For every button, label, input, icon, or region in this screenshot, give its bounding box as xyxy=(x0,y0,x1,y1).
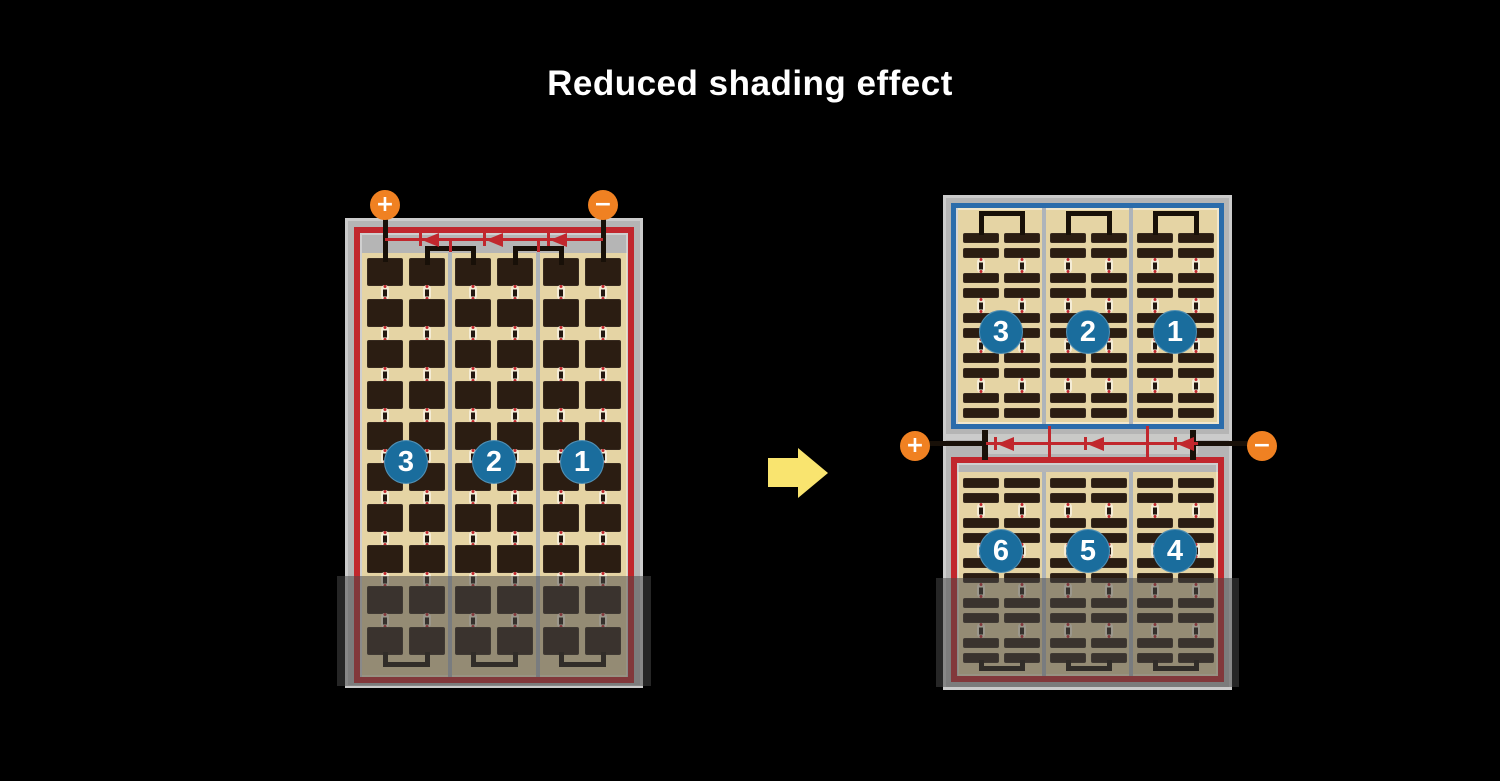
cell-connector xyxy=(599,490,607,505)
solar-half-cell xyxy=(963,368,999,378)
cell-connector xyxy=(977,298,985,313)
cell-connector xyxy=(1105,503,1113,518)
solar-cell xyxy=(585,545,621,573)
solar-half-cell xyxy=(1091,353,1127,363)
solar-cell xyxy=(497,299,533,327)
cell-connector xyxy=(1192,258,1200,273)
cell-connector xyxy=(1064,503,1072,518)
string-badge: 2 xyxy=(1066,310,1110,354)
cell-connector xyxy=(469,326,477,341)
cell-connector xyxy=(423,367,431,382)
string-divider xyxy=(1129,208,1133,424)
cell-connector xyxy=(1151,298,1159,313)
solar-half-cell xyxy=(1004,408,1040,418)
minus-icon: − xyxy=(594,194,612,216)
cell-connector xyxy=(1151,378,1159,393)
string-badge: 3 xyxy=(384,440,428,484)
left-plus-terminal: + xyxy=(370,190,400,220)
solar-half-cell xyxy=(1137,478,1173,488)
solar-half-cell xyxy=(1050,493,1086,503)
solar-cell xyxy=(585,381,621,409)
cell-connector xyxy=(1018,503,1026,518)
cell-connector xyxy=(381,408,389,423)
solar-half-cell xyxy=(1137,288,1173,298)
solar-half-cell xyxy=(1091,248,1127,258)
cell-connector xyxy=(557,326,565,341)
solar-cell xyxy=(409,381,445,409)
cell-connector xyxy=(469,408,477,423)
cell-connector xyxy=(1018,298,1026,313)
solar-cell xyxy=(455,340,491,368)
cell-connector xyxy=(599,367,607,382)
solar-cell xyxy=(543,504,579,532)
solar-half-cell xyxy=(963,393,999,403)
solar-cell xyxy=(367,504,403,532)
solar-half-cell xyxy=(1178,408,1214,418)
solar-cell xyxy=(543,340,579,368)
right-shade-overlay xyxy=(936,578,1239,687)
solar-half-cell xyxy=(1137,368,1173,378)
plus-icon: + xyxy=(906,435,924,457)
solar-half-cell xyxy=(1091,288,1127,298)
cell-connector xyxy=(1151,503,1159,518)
solar-cell xyxy=(585,340,621,368)
solar-half-cell xyxy=(1178,393,1214,403)
solar-half-cell xyxy=(963,273,999,283)
solar-cell xyxy=(409,299,445,327)
cell-connector xyxy=(511,285,519,300)
solar-half-cell xyxy=(1050,393,1086,403)
cell-connector xyxy=(381,490,389,505)
plus-busbar xyxy=(982,430,988,460)
cell-connector xyxy=(423,408,431,423)
cell-connector xyxy=(511,367,519,382)
solar-half-cell xyxy=(1091,518,1127,528)
solar-cell xyxy=(585,258,621,286)
cell-connector xyxy=(511,408,519,423)
plus-icon: + xyxy=(376,194,394,216)
diagram-title: Reduced shading effect xyxy=(0,64,1500,104)
cell-connector xyxy=(1105,258,1113,273)
solar-half-cell xyxy=(1178,478,1214,488)
solar-cell xyxy=(543,545,579,573)
busbar xyxy=(1066,211,1112,216)
cell-connector xyxy=(1018,258,1026,273)
cell-connector xyxy=(381,326,389,341)
cell-connector xyxy=(599,531,607,546)
transform-arrow-head-icon xyxy=(798,448,828,498)
solar-half-cell xyxy=(1050,248,1086,258)
left-minus-terminal: − xyxy=(588,190,618,220)
solar-half-cell xyxy=(1178,518,1214,528)
cell-connector xyxy=(1105,298,1113,313)
solar-cell xyxy=(367,545,403,573)
solar-cell xyxy=(585,504,621,532)
cell-connector xyxy=(1151,258,1159,273)
cell-connector xyxy=(423,285,431,300)
string-badge: 5 xyxy=(1066,529,1110,573)
cell-connector xyxy=(599,326,607,341)
solar-cell xyxy=(367,381,403,409)
solar-half-cell xyxy=(1178,353,1214,363)
busbar xyxy=(1153,211,1199,216)
solar-cell xyxy=(543,381,579,409)
solar-cell xyxy=(367,299,403,327)
diagram-canvas: Reduced shading effect + − + − 3 2 1 3 2… xyxy=(0,0,1500,781)
cell-connector xyxy=(977,378,985,393)
cell-connector xyxy=(381,531,389,546)
left-shade-overlay xyxy=(337,576,651,686)
solar-half-cell xyxy=(963,288,999,298)
cell-connector xyxy=(1192,378,1200,393)
solar-half-cell xyxy=(1050,408,1086,418)
solar-half-cell xyxy=(963,478,999,488)
cell-connector xyxy=(511,490,519,505)
string-badge: 4 xyxy=(1153,529,1197,573)
cell-connector xyxy=(1105,378,1113,393)
solar-half-cell xyxy=(1004,248,1040,258)
cell-connector xyxy=(1064,378,1072,393)
cell-connector xyxy=(557,490,565,505)
solar-half-cell xyxy=(1004,368,1040,378)
solar-half-cell xyxy=(963,518,999,528)
solar-cell xyxy=(497,340,533,368)
solar-half-cell xyxy=(963,408,999,418)
solar-half-cell xyxy=(1050,288,1086,298)
solar-cell xyxy=(367,258,403,286)
string-divider xyxy=(1042,208,1046,424)
cell-connector xyxy=(557,408,565,423)
cell-connector xyxy=(599,285,607,300)
solar-half-cell xyxy=(1091,393,1127,403)
transform-arrow-icon xyxy=(768,458,799,487)
diode-icon xyxy=(1174,436,1196,452)
solar-half-cell xyxy=(1004,273,1040,283)
solar-half-cell xyxy=(1004,288,1040,298)
cell-connector xyxy=(1192,503,1200,518)
solar-half-cell xyxy=(1050,518,1086,528)
solar-cell xyxy=(543,299,579,327)
busbar xyxy=(979,211,1025,216)
solar-half-cell xyxy=(1091,368,1127,378)
solar-cell xyxy=(409,340,445,368)
solar-half-cell xyxy=(1091,478,1127,488)
solar-half-cell xyxy=(1091,493,1127,503)
cell-connector xyxy=(469,285,477,300)
solar-half-cell xyxy=(1050,368,1086,378)
wire-stub xyxy=(1048,426,1051,458)
solar-half-cell xyxy=(1137,273,1173,283)
string-badge: 6 xyxy=(979,529,1023,573)
solar-half-cell xyxy=(1137,353,1173,363)
solar-cell xyxy=(367,340,403,368)
cell-connector xyxy=(557,367,565,382)
wire-stub xyxy=(449,238,452,252)
solar-cell xyxy=(455,381,491,409)
diode-icon xyxy=(483,232,505,248)
solar-cell xyxy=(455,299,491,327)
solar-half-cell xyxy=(1091,273,1127,283)
solar-half-cell xyxy=(1178,493,1214,503)
solar-cell xyxy=(455,545,491,573)
cell-connector xyxy=(1192,298,1200,313)
solar-cell xyxy=(497,545,533,573)
solar-half-cell xyxy=(1091,408,1127,418)
right-plus-terminal: + xyxy=(900,431,930,461)
cell-connector xyxy=(381,367,389,382)
minus-icon: − xyxy=(1253,435,1271,457)
right-minus-terminal: − xyxy=(1247,431,1277,461)
diode-icon xyxy=(419,232,441,248)
solar-half-cell xyxy=(1004,493,1040,503)
solar-half-cell xyxy=(1004,478,1040,488)
string-badge: 1 xyxy=(560,440,604,484)
solar-half-cell xyxy=(1178,248,1214,258)
solar-cell xyxy=(497,381,533,409)
cell-connector xyxy=(511,326,519,341)
solar-half-cell xyxy=(1050,353,1086,363)
solar-half-cell xyxy=(1137,248,1173,258)
diode-icon xyxy=(547,232,569,248)
cell-connector xyxy=(1018,378,1026,393)
string-badge: 2 xyxy=(472,440,516,484)
solar-half-cell xyxy=(963,493,999,503)
solar-half-cell xyxy=(1137,408,1173,418)
solar-half-cell xyxy=(963,353,999,363)
cell-connector xyxy=(423,490,431,505)
solar-half-cell xyxy=(1178,368,1214,378)
wire-stub xyxy=(1146,426,1149,458)
solar-half-cell xyxy=(1050,478,1086,488)
solar-half-cell xyxy=(1137,518,1173,528)
solar-cell xyxy=(409,504,445,532)
solar-cell xyxy=(455,504,491,532)
cell-connector xyxy=(1064,298,1072,313)
cell-connector xyxy=(977,258,985,273)
solar-cell xyxy=(497,504,533,532)
cell-connector xyxy=(599,408,607,423)
cell-connector xyxy=(423,531,431,546)
solar-half-cell xyxy=(1137,493,1173,503)
solar-half-cell xyxy=(963,248,999,258)
solar-half-cell xyxy=(1178,273,1214,283)
solar-half-cell xyxy=(1050,273,1086,283)
cell-connector xyxy=(423,326,431,341)
cell-connector xyxy=(469,367,477,382)
wire-stub xyxy=(537,238,540,252)
diode-icon xyxy=(994,436,1016,452)
solar-half-cell xyxy=(1137,393,1173,403)
solar-cell xyxy=(409,545,445,573)
cell-connector xyxy=(1064,258,1072,273)
solar-half-cell xyxy=(1004,393,1040,403)
cell-connector xyxy=(469,531,477,546)
solar-half-cell xyxy=(1004,353,1040,363)
cell-connector xyxy=(511,531,519,546)
cell-connector xyxy=(557,285,565,300)
cell-connector xyxy=(469,490,477,505)
solar-half-cell xyxy=(1004,518,1040,528)
string-badge: 3 xyxy=(979,310,1023,354)
cell-connector xyxy=(381,285,389,300)
string-badge: 1 xyxy=(1153,310,1197,354)
diode-icon xyxy=(1084,436,1106,452)
cell-connector xyxy=(557,531,565,546)
solar-half-cell xyxy=(1178,288,1214,298)
cell-connector xyxy=(977,503,985,518)
solar-cell xyxy=(585,299,621,327)
